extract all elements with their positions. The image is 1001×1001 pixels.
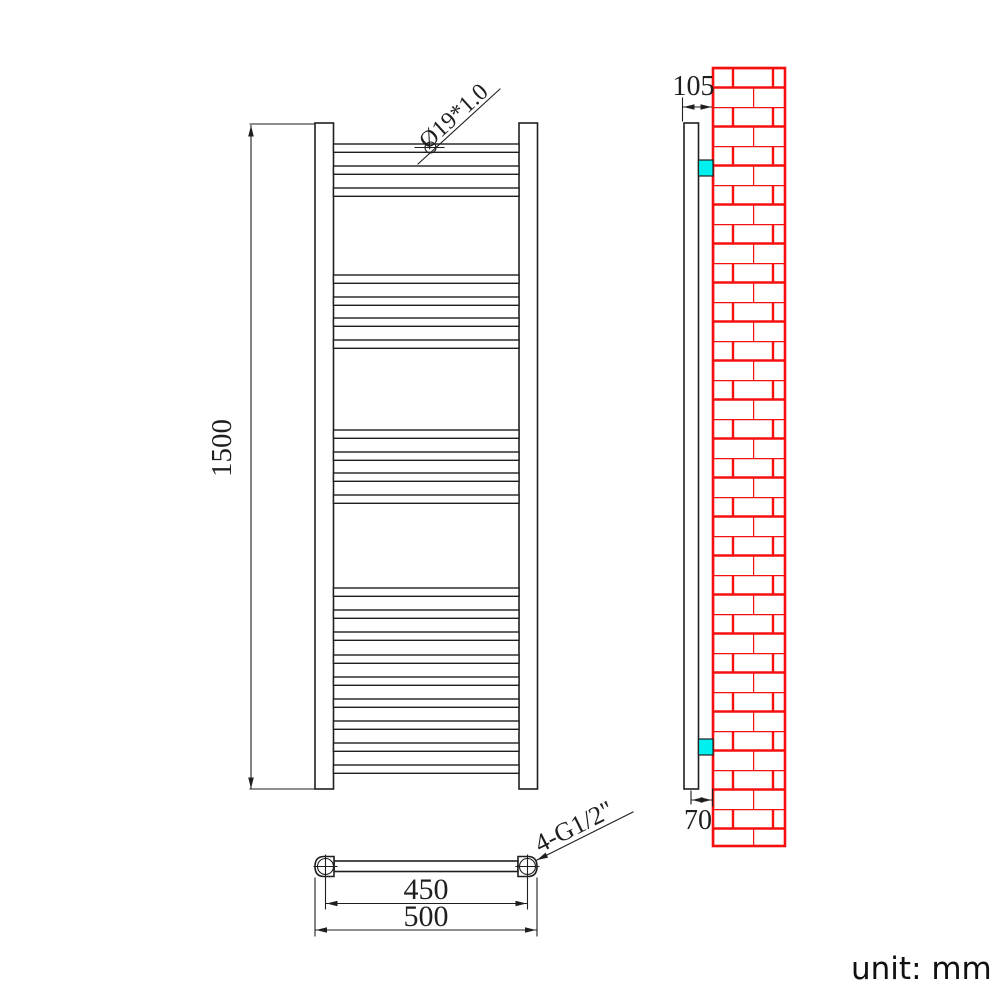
towel-bar	[334, 297, 520, 305]
mounting-bracket-top	[699, 160, 714, 176]
towel-bar	[334, 318, 520, 326]
radiator-profile	[684, 123, 699, 789]
towel-bar	[334, 495, 520, 503]
towel-bar	[334, 275, 520, 283]
towel-bar	[334, 743, 520, 751]
towel-bar	[334, 610, 520, 618]
height-dim-label: 1500	[206, 419, 238, 477]
mounting-bracket-bottom	[699, 739, 714, 755]
towel-bar	[334, 721, 520, 729]
side-view: 105 70	[673, 68, 786, 846]
left-rail	[315, 123, 334, 789]
towel-bar	[334, 188, 520, 196]
overall-dim-label: 500	[404, 900, 449, 933]
right-rail	[519, 123, 538, 789]
towel-bar	[334, 588, 520, 596]
technical-drawing: 1500 Ø19*1.0 450	[0, 0, 1001, 1001]
brick-wall	[713, 68, 785, 846]
towel-bar	[334, 655, 520, 663]
towel-bar	[334, 632, 520, 640]
towel-bar	[334, 430, 520, 438]
offset-dim-label: 70	[684, 805, 712, 836]
towel-bar	[334, 166, 520, 174]
towel-bar	[334, 677, 520, 685]
unit-label: unit: mm	[851, 951, 992, 987]
towel-bar	[334, 699, 520, 707]
towel-bar	[334, 473, 520, 481]
depth-dim-label: 105	[673, 71, 715, 102]
towel-bar	[334, 765, 520, 773]
top-tube	[334, 861, 518, 872]
towel-bar	[334, 452, 520, 460]
towel-bar	[334, 340, 520, 348]
